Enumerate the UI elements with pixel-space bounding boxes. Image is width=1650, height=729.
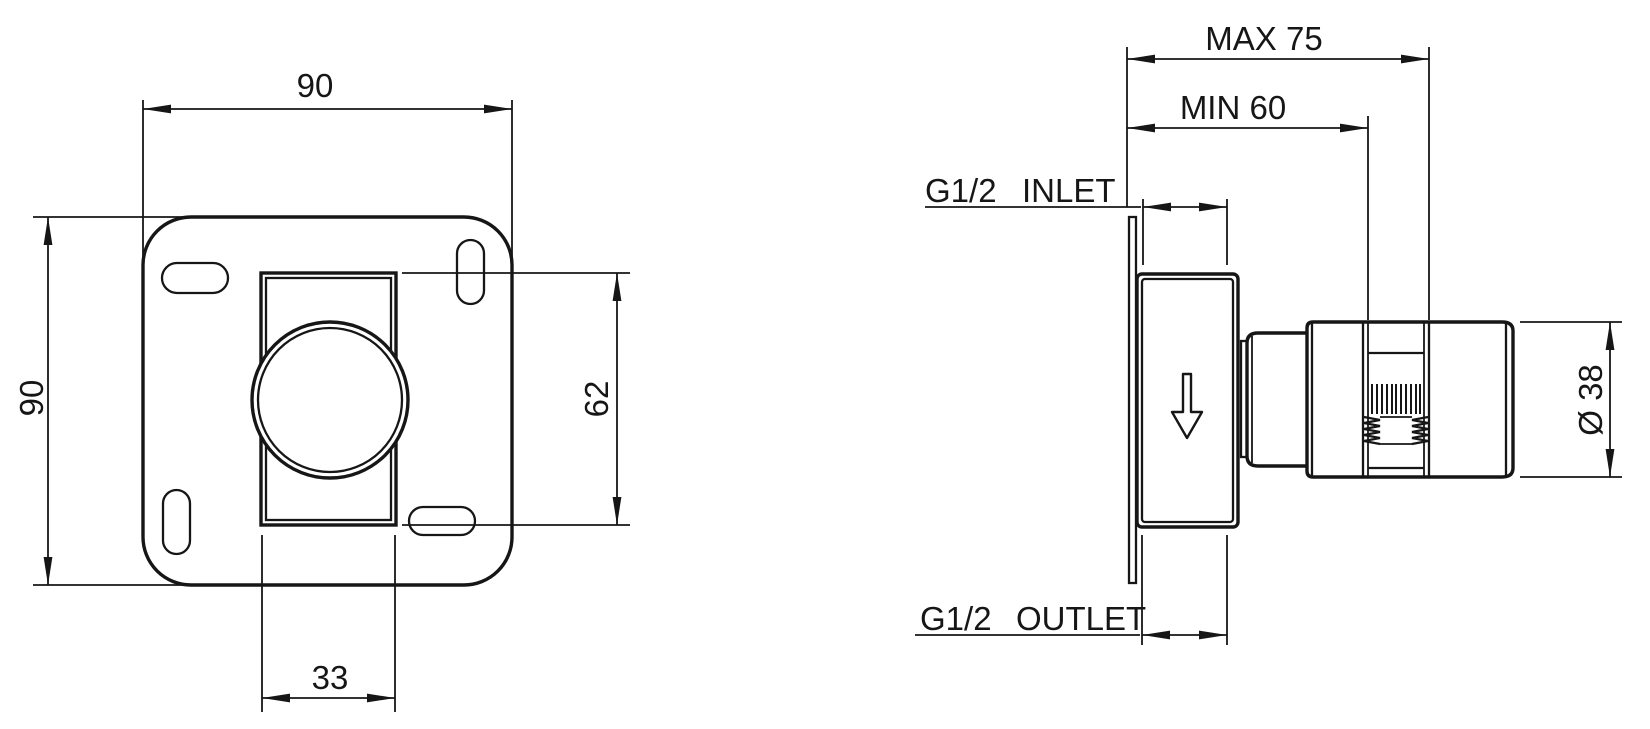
front-view: 90 90 62 33 xyxy=(13,67,630,712)
drawing-sheet: 90 90 62 33 xyxy=(0,0,1650,729)
label-min-depth: MIN 60 xyxy=(1180,89,1286,126)
dim-inlet: G1/2 INLET xyxy=(925,172,1227,265)
dim-outlet: G1/2 OUTLET xyxy=(915,535,1227,645)
label-cutout-width: 33 xyxy=(312,659,349,696)
label-plate-height: 90 xyxy=(13,380,50,417)
dim-handle-diameter: Ø 38 xyxy=(1520,322,1622,477)
label-outlet-thread: G1/2 xyxy=(920,600,992,637)
label-cutout-height: 62 xyxy=(578,381,615,418)
label-handle-diameter: Ø 38 xyxy=(1572,364,1609,436)
side-view: MAX 75 MIN 60 G1/2 INLET G1/2 OUTLET xyxy=(915,20,1622,645)
stem-collar xyxy=(1247,333,1307,466)
label-plate-width: 90 xyxy=(297,67,334,104)
handle-circle-outer xyxy=(252,322,408,478)
label-outlet-word: OUTLET xyxy=(1016,600,1146,637)
label-inlet-thread: G1/2 xyxy=(925,172,997,209)
wall-flange xyxy=(1129,217,1136,583)
technical-drawing: 90 90 62 33 xyxy=(0,0,1650,729)
label-max-depth: MAX 75 xyxy=(1205,20,1322,57)
label-inlet-word: INLET xyxy=(1022,172,1116,209)
